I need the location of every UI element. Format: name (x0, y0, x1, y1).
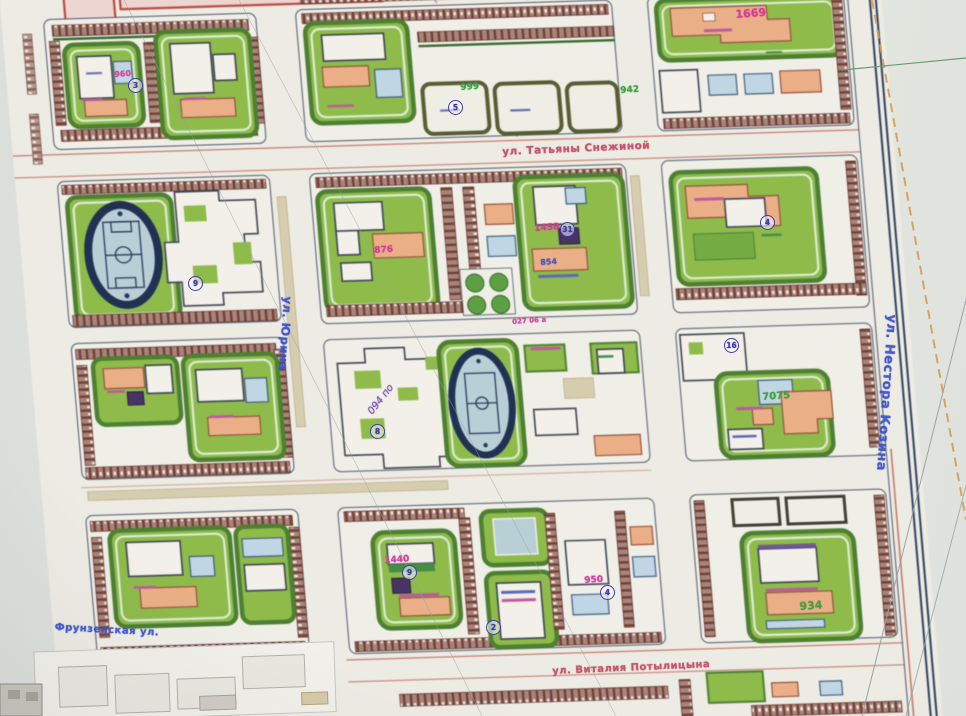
city-block-a3 (86, 509, 310, 662)
city-block-c2-lower (675, 323, 882, 461)
city-block-c3 (689, 489, 898, 643)
map-graphics (0, 0, 966, 716)
city-block-a2-school-stadium (57, 175, 281, 328)
map-sheet (0, 0, 966, 716)
city-block-b3 (338, 498, 666, 654)
city-block-a1 (43, 13, 266, 150)
city-block-b1 (295, 0, 622, 142)
lower-sheet-dark-buildings (0, 684, 42, 716)
master-plan-photo: ул. Нестора Козина ул. Юрина Фрунзенская… (0, 0, 966, 716)
city-block-b2-school-stadium (323, 330, 650, 472)
city-block-c1 (647, 0, 854, 131)
city-block-c2-upper (661, 155, 870, 313)
city-block-a2-residential (71, 337, 295, 480)
city-block-b2-upper (309, 164, 638, 324)
